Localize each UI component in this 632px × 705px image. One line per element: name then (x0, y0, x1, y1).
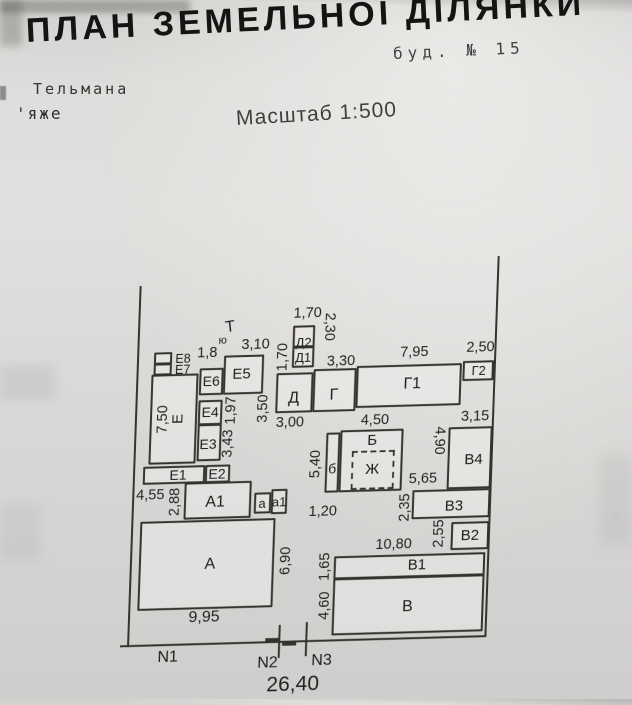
gate-mark-1 (265, 638, 279, 642)
dim-4-90: 4,90 (431, 426, 448, 455)
building-e4-label: Е4 (201, 404, 219, 420)
building-e5-label: Е5 (232, 365, 251, 383)
bleedthrough-mark-3 (600, 455, 632, 545)
dim-7-95: 7,95 (400, 344, 429, 361)
yu-symbol: ю (218, 335, 227, 347)
building-d1-label: Д1 (295, 350, 312, 365)
dim-3-00: 3,00 (275, 414, 304, 431)
dim-1-8: 1,8 (197, 345, 218, 362)
building-b-small-label: б (328, 460, 337, 476)
clipped-character-mark (0, 86, 6, 100)
building-g1-label: Г1 (403, 375, 421, 393)
dim-2-50: 2,50 (466, 339, 495, 356)
building-a1-small-label: а1 (272, 494, 287, 509)
marker-n1: N1 (157, 649, 178, 668)
building-e3-label: Е3 (199, 436, 217, 452)
marker-n3: N3 (311, 651, 332, 670)
dim-1-70-left: 1,70 (275, 343, 292, 372)
scale-note: Масштаб 1:500 (235, 98, 397, 131)
dim-4-55: 4,55 (136, 487, 165, 504)
dim-5-65: 5,65 (408, 471, 437, 488)
building-e-label: Е (169, 414, 186, 424)
dim-2-88: 2,88 (167, 488, 184, 517)
dim-3-15: 3,15 (461, 408, 490, 425)
building-v1-label: В1 (407, 556, 426, 574)
dim-1-97: 1,97 (223, 396, 240, 425)
building-e1-label: Е1 (169, 467, 187, 483)
dim-2-55: 2,55 (430, 519, 447, 548)
dim-10-80: 10,80 (375, 536, 412, 553)
dim-3-50: 3,50 (255, 394, 272, 423)
building-number: буд. № 15 (393, 38, 525, 63)
dim-4-60: 4,60 (316, 591, 333, 620)
building-v4-label: В4 (464, 451, 483, 469)
bleedthrough-mark-2 (0, 505, 40, 560)
building-a1-label: А1 (205, 494, 225, 513)
building-b-label: Б (367, 432, 377, 449)
building-g2-label: Г2 (471, 363, 486, 378)
street-name: Тельмана (33, 80, 129, 98)
dim-26-40-frontage: 26,40 (266, 672, 319, 697)
marker-n2: N2 (257, 654, 278, 673)
site-plan-drawing: Е8 Е7 7,50 Е Е6 Е5 Е4 Е3 Е1 Е2 1,8 3,10 … (112, 247, 522, 704)
scanned-plan-page: { "header": { "title": "ПЛАН ЗЕМЕЛЬНОЇ Д… (0, 0, 632, 699)
dim-5-40: 5,40 (307, 450, 324, 479)
building-a-small-label: а (258, 496, 266, 511)
street-fragment: 'яже (16, 104, 63, 123)
dim-1-65: 1,65 (316, 552, 333, 581)
building-g-label: Г (329, 386, 338, 404)
dim-3-43: 3,43 (220, 429, 237, 458)
gate-mark-2 (282, 641, 296, 645)
dim-4-50: 4,50 (361, 412, 390, 429)
dim-2-30: 2,30 (321, 312, 338, 341)
building-e6-label: Е6 (202, 373, 220, 389)
boundary-bottom (120, 635, 486, 647)
photo-corner-shadow (0, 0, 22, 46)
building-e2-label: Е2 (208, 466, 226, 482)
dim-1-70-top: 1,70 (293, 305, 322, 322)
building-zh-label: Ж (365, 461, 379, 478)
building-v-label: В (402, 598, 413, 616)
building-d-label: Д (288, 390, 299, 408)
bleedthrough-mark-1 (0, 365, 55, 400)
building-a-label: А (204, 556, 215, 574)
dim-3-10: 3,10 (241, 336, 270, 353)
dim-6-90: 6,90 (278, 546, 295, 575)
dim-3-30: 3,30 (327, 353, 356, 370)
dim-9-95: 9,95 (188, 609, 220, 628)
dim-1-20: 1,20 (308, 503, 337, 520)
building-v3-label: В3 (444, 497, 463, 515)
building-v2-label: В2 (460, 527, 479, 545)
